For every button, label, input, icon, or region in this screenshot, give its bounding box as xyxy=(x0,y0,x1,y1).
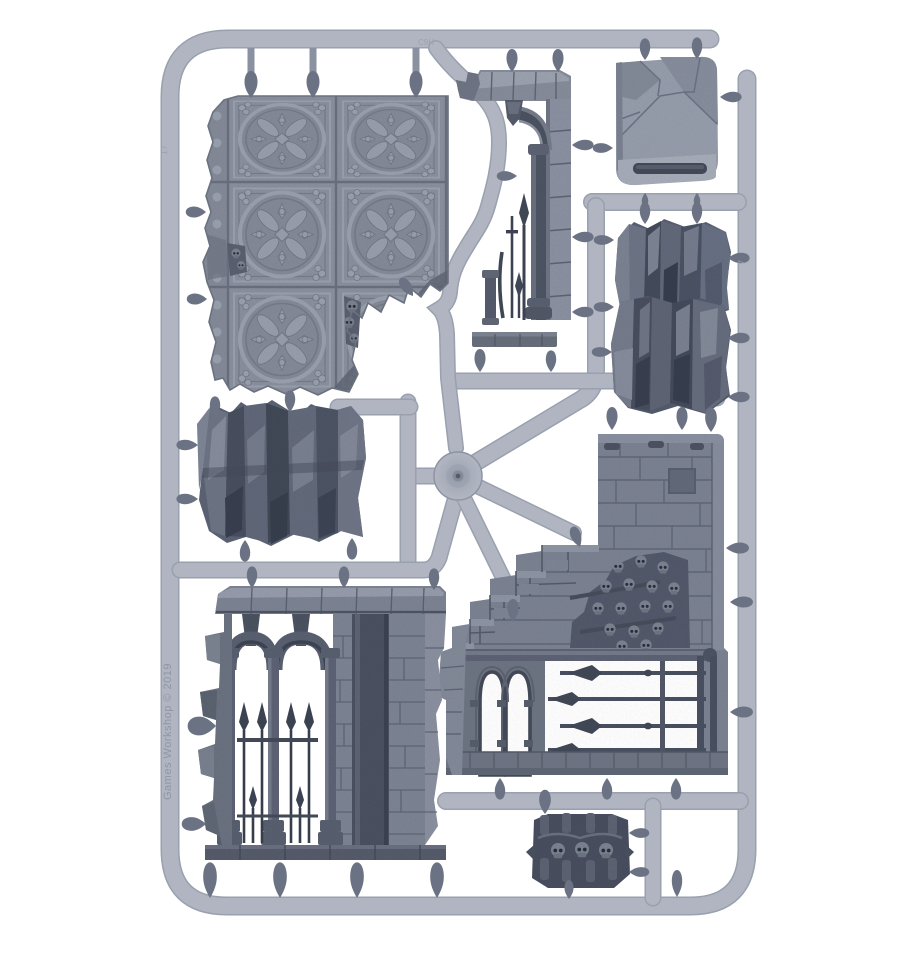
svg-text:C9H: C9H xyxy=(418,38,434,47)
svg-text:17: 17 xyxy=(159,145,169,155)
svg-text:7: 7 xyxy=(737,260,747,265)
svg-text:Games Workshop © 2019: Games Workshop © 2019 xyxy=(162,663,174,800)
